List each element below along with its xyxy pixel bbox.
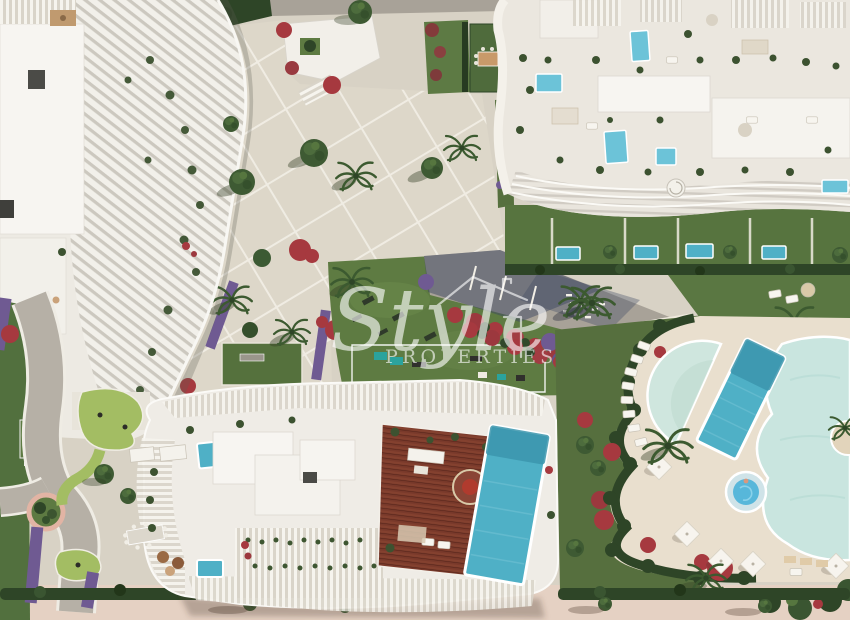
watermark: Style PROPERTIES: [330, 271, 557, 371]
render-canvas: Style PROPERTIES: [0, 0, 850, 620]
minigolf-green-1: [78, 389, 143, 451]
jacuzzi: [726, 472, 766, 512]
garden-dining-table: [478, 52, 498, 66]
terrace-pool-2: [197, 560, 223, 577]
building-c-pergola-garden: [235, 528, 383, 598]
building-b: [498, 0, 850, 217]
petanque-court: [222, 343, 302, 385]
aerial-render: Style PROPERTIES: [0, 0, 850, 620]
watermark-caps-word: PROPERTIES: [385, 346, 557, 368]
building-c: [121, 380, 558, 618]
